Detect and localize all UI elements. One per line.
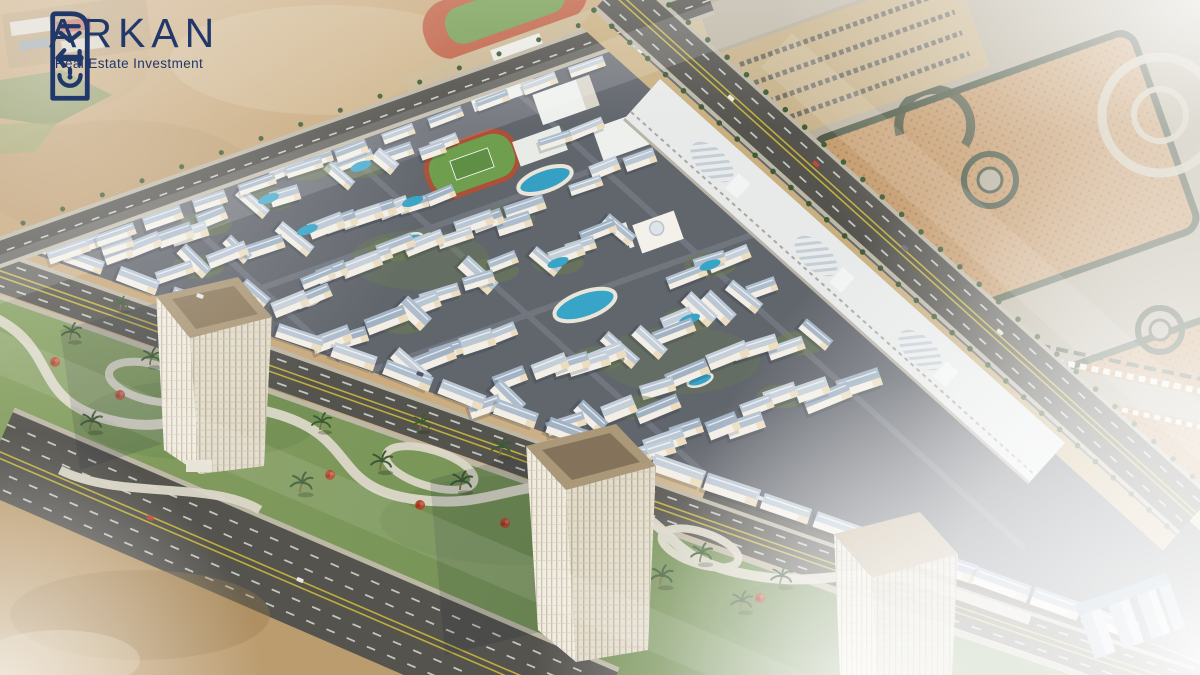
arkan-logo-mark-icon (44, 8, 96, 104)
aerial-render-image: ARKAN Real Estate Investment (0, 0, 1200, 675)
haze-vignette (0, 0, 1200, 675)
masterplan-scene (0, 0, 1200, 675)
brand-logo: ARKAN Real Estate Investment (44, 8, 214, 71)
